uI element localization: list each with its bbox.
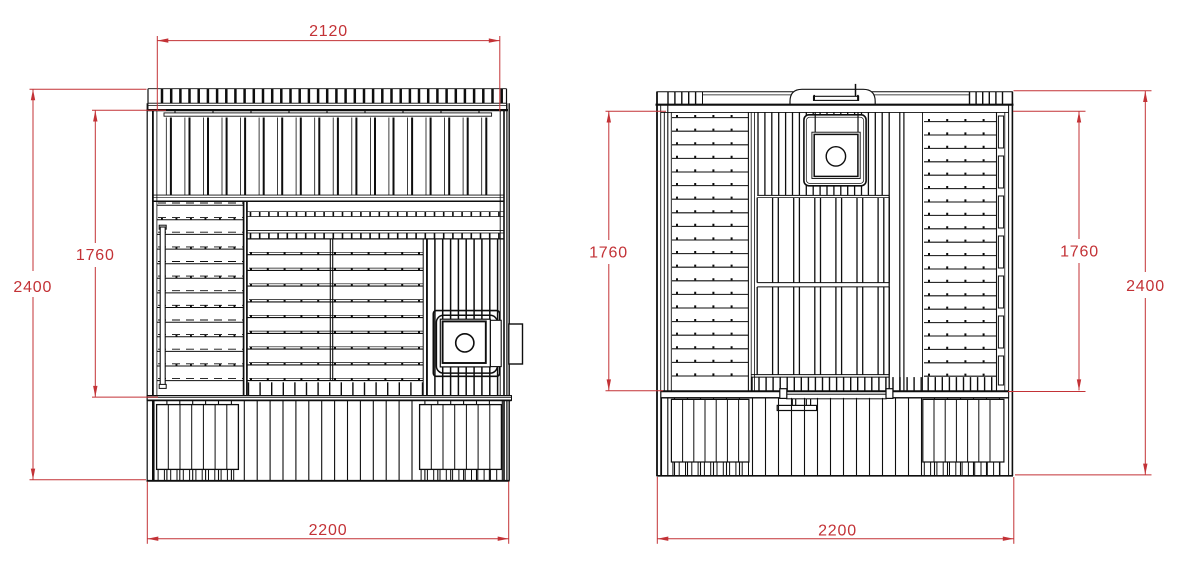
svg-text:2200: 2200 [818,523,857,540]
svg-text:2200: 2200 [309,522,348,539]
svg-text:2400: 2400 [13,279,52,296]
svg-text:1760: 1760 [589,245,628,262]
svg-text:2120: 2120 [309,23,348,40]
svg-text:1760: 1760 [1060,244,1099,261]
svg-text:1760: 1760 [76,247,115,264]
svg-text:2400: 2400 [1126,278,1165,295]
